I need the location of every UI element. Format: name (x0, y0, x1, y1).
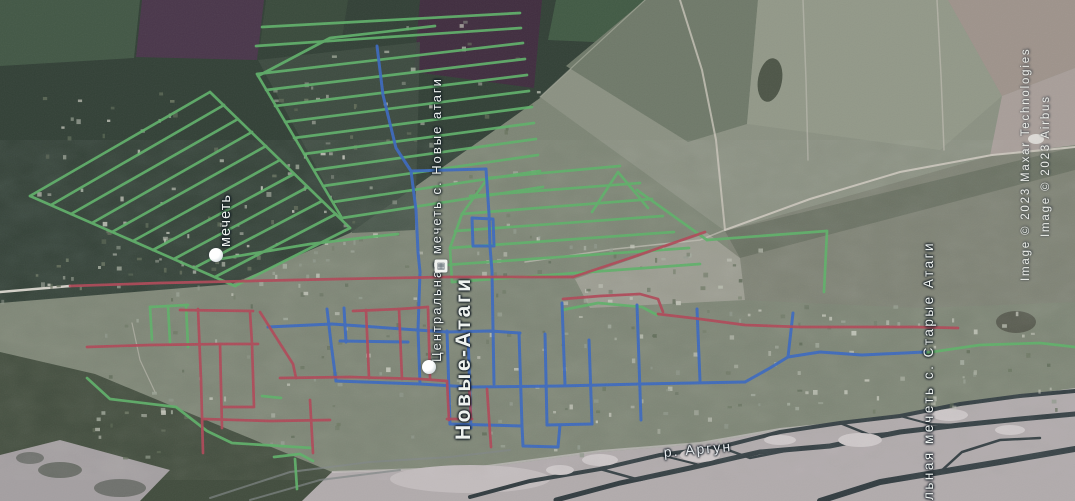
map-image (0, 0, 1075, 501)
building-icon[interactable]: ▦ (435, 260, 448, 273)
label-central-mosque-starye: альная мечеть с. Старые Атаги (921, 241, 936, 501)
attribution-airbus: Image © 2023 Airbus (1040, 95, 1052, 237)
label-mosque: мечеть (218, 194, 234, 247)
attribution-maxar: Image © 2023 Maxar Technologies (1020, 48, 1032, 281)
label-central-mosque-novye: Центральная мечеть с. Новые атаги (429, 77, 444, 362)
satellite-map[interactable]: мечеть Центральная мечеть с. Новые атаги… (0, 0, 1075, 501)
mosque-placemark-west[interactable] (209, 248, 223, 262)
label-town-novye-atagi: Новые-Атаги (452, 276, 476, 440)
mosque-placemark-center[interactable] (422, 360, 436, 374)
